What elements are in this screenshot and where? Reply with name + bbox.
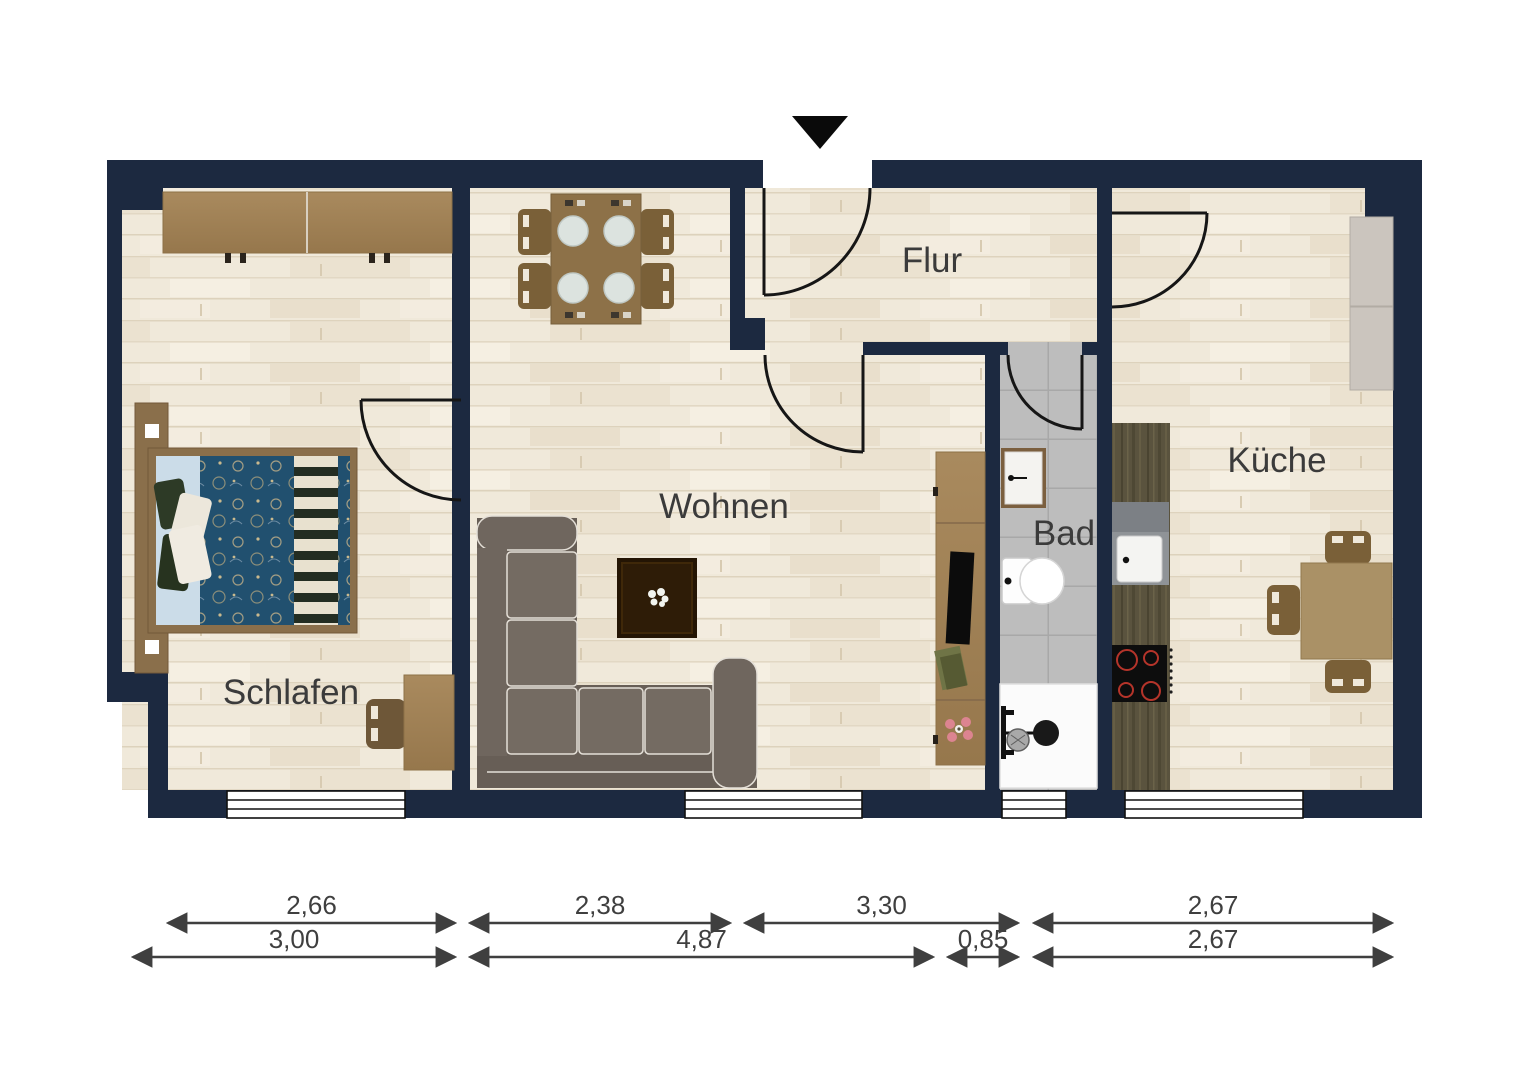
window-schlafen (227, 791, 405, 818)
toilet-icon (1002, 558, 1064, 604)
dimension-label: 0,85 (958, 924, 1009, 954)
shower-icon (1000, 684, 1097, 788)
dimension-label: 2,67 (1188, 890, 1239, 920)
room-label-bad: Bad (1033, 514, 1095, 553)
dimension-label: 2,66 (286, 890, 337, 920)
dimension-label: 2,67 (1188, 924, 1239, 954)
windows (227, 791, 1303, 818)
bath-sink-icon (1001, 448, 1046, 508)
room-label-flur: Flur (902, 241, 963, 280)
floor-plan-page: Schlafen Wohnen Flur Bad Küche 2,662,383… (0, 0, 1528, 1080)
window-wohnen (685, 791, 862, 818)
kitchen-sink-icon (1112, 502, 1169, 585)
tv-sideboard-icon (933, 452, 985, 765)
cooktop-icon (1112, 645, 1173, 702)
dimension-label: 4,87 (676, 924, 727, 954)
entrance-opening (763, 160, 872, 188)
window-kueche (1125, 791, 1303, 818)
tv-icon (946, 551, 975, 644)
floor-plan-canvas: Schlafen Wohnen Flur Bad Küche 2,662,383… (0, 0, 1528, 1080)
room-label-wohnen: Wohnen (659, 487, 789, 526)
room-label-schlafen: Schlafen (223, 673, 359, 712)
dimension-label: 3,30 (856, 890, 907, 920)
dimension-label: 3,00 (269, 924, 320, 954)
room-label-kueche: Küche (1227, 441, 1326, 480)
coffee-table-icon (617, 558, 697, 638)
tall-cabinet-icon (1350, 217, 1393, 390)
window-bad (1002, 791, 1066, 818)
dimension-label: 2,38 (575, 890, 626, 920)
wardrobe-icon (163, 192, 452, 263)
kitchen-counter-icon (1112, 423, 1170, 790)
